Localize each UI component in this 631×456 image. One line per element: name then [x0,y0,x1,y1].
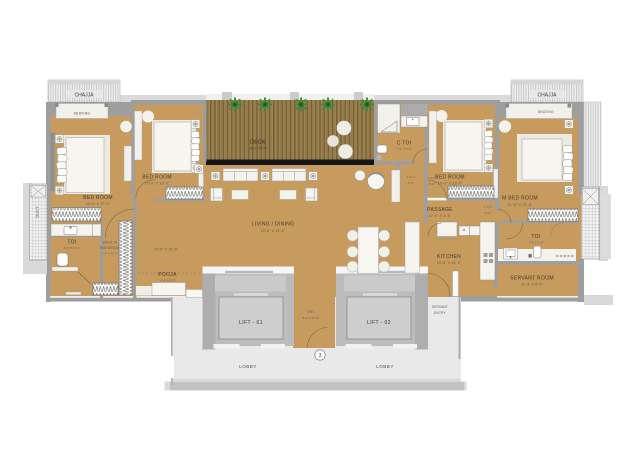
svg-text:6'-6" X 10'-4": 6'-6" X 10'-4" [64,246,81,250]
svg-text:ENTRY: ENTRY [434,311,446,315]
svg-text:C TOI: C TOI [397,141,412,147]
svg-text:2'-0" X: 2'-0" X [407,175,416,179]
svg-text:24'-0" X 9'-0": 24'-0" X 9'-0" [249,147,267,151]
svg-text:BED ROOM: BED ROOM [435,175,465,181]
svg-text:SERVANT ROOM: SERVANT ROOM [510,276,554,282]
svg-text:CHAJJA: CHAJJA [75,93,95,99]
svg-text:5'-6" X 5'-2": 5'-6" X 5'-2" [160,279,175,283]
svg-text:LIFT - 02: LIFT - 02 [367,320,391,326]
svg-text:LIFT - 01: LIFT - 01 [239,320,263,326]
svg-text:11'-2" X 17'-0": 11'-2" X 17'-0" [86,202,111,206]
svg-text:5'-0": 5'-0" [485,211,491,215]
svg-text:DECK: DECK [250,140,266,146]
svg-text:CHAJJA: CHAJJA [538,93,558,99]
svg-text:PASSAGE: PASSAGE [427,207,453,213]
svg-text:10'-0" X 13'-0": 10'-0" X 13'-0" [145,182,170,186]
svg-text:BED ROOM: BED ROOM [142,175,172,181]
svg-text:7'-6" X 5'-0": 7'-6" X 5'-0" [396,147,411,151]
svg-text:SEATING: SEATING [74,112,91,116]
svg-text:POOJA: POOJA [158,272,177,278]
svg-text:LIVING / DINING: LIVING / DINING [252,222,295,228]
svg-text:KITCHEN: KITCHEN [437,254,461,260]
svg-text:5'-0" X 10'-4": 5'-0" X 10'-4" [303,316,320,320]
svg-text:TOI: TOI [531,234,540,240]
svg-text:10'-0" X 13'-0": 10'-0" X 13'-0" [438,182,463,186]
svg-text:ENT: ENT [308,310,315,314]
svg-text:LOBBY: LOBBY [376,364,394,369]
svg-text:5'-0": 5'-0" [429,182,435,186]
svg-text:BED ROOM: BED ROOM [83,195,113,201]
svg-text:DUCT: DUCT [35,206,40,218]
svg-text:10'-6" X 13'-9": 10'-6" X 13'-9" [437,261,462,265]
svg-text:SERVANT: SERVANT [432,305,448,309]
svg-text:2'-6" X: 2'-6" X [428,176,437,180]
svg-text:17'-0" X 3'-6": 17'-0" X 3'-6" [429,214,452,218]
svg-text:WALK IN: WALK IN [103,241,118,245]
svg-text:WARDROBE: WARDROBE [100,246,120,250]
svg-text:TOI: TOI [67,240,76,246]
svg-text:29'-6" X 11'-9": 29'-6" X 11'-9" [261,229,286,233]
svg-text:LOBBY: LOBBY [239,364,257,369]
svg-text:10'-0" X 10'-6": 10'-0" X 10'-6" [154,248,179,252]
svg-text:5'-0": 5'-0" [408,181,414,185]
svg-text:7'-0" X: 7'-0" X [484,205,493,209]
svg-text:SEATING: SEATING [538,110,554,114]
svg-text:11'-6" X 17'-6": 11'-6" X 17'-6" [508,203,533,207]
svg-text:3: 3 [319,353,322,359]
svg-text:M BED ROOM: M BED ROOM [502,196,538,202]
svg-text:7'-6" X 3'-6": 7'-6" X 3'-6" [528,241,543,245]
svg-text:5'-4" X 10'-6": 5'-4" X 10'-6" [102,252,119,256]
svg-text:11'-3" X 8'-9": 11'-3" X 8'-9" [521,283,544,287]
